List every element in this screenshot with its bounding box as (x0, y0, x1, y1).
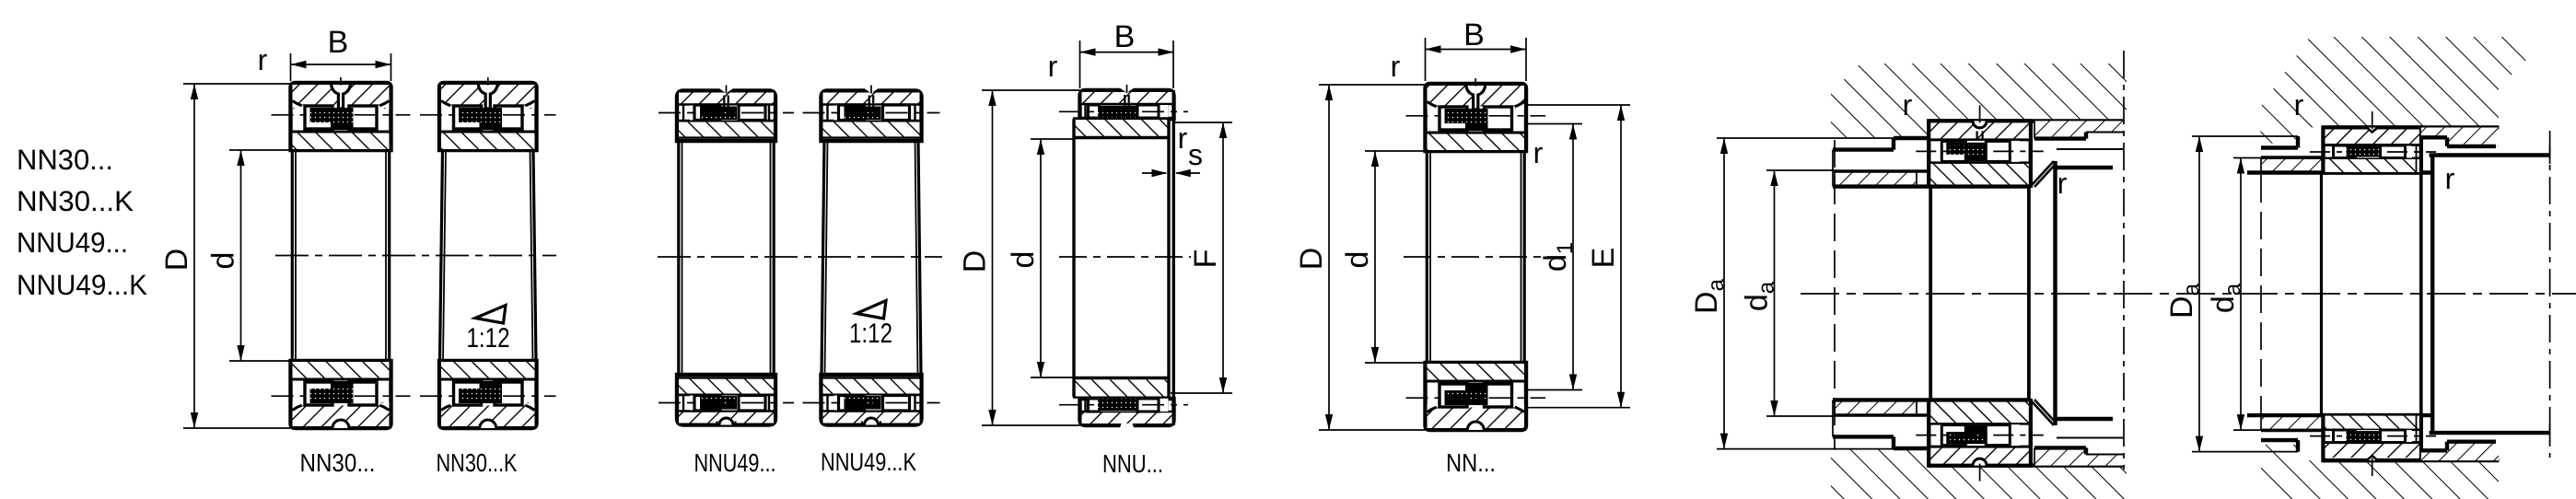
svg-text:B: B (1114, 19, 1136, 54)
svg-text:NNU49...K: NNU49...K (17, 269, 147, 301)
svg-text:r: r (258, 43, 268, 76)
svg-text:E: E (1586, 248, 1621, 269)
svg-text:NN30...K: NN30...K (17, 185, 134, 217)
svg-text:1:12: 1:12 (849, 319, 892, 349)
svg-text:r: r (2294, 88, 2304, 122)
svg-text:r: r (2057, 167, 2068, 200)
svg-text:NN30...: NN30... (300, 448, 376, 477)
svg-text:NN...: NN... (1446, 448, 1496, 477)
svg-text:d: d (206, 252, 241, 270)
svg-text:NNU49...: NNU49... (17, 226, 128, 259)
svg-text:B: B (328, 25, 349, 60)
svg-text:d: d (1006, 251, 1041, 269)
svg-text:NNU49...: NNU49... (694, 448, 776, 477)
svg-text:NN30...: NN30... (17, 144, 113, 176)
svg-text:r: r (1533, 136, 1544, 169)
svg-text:D: D (1294, 248, 1329, 271)
svg-text:D: D (159, 249, 194, 272)
svg-text:NNU...: NNU... (1102, 449, 1163, 478)
svg-text:B: B (1463, 17, 1485, 52)
svg-text:r: r (1903, 88, 1913, 122)
svg-text:r: r (1178, 122, 1188, 155)
svg-text:1:12: 1:12 (467, 323, 510, 354)
svg-text:NNU49...K: NNU49...K (821, 447, 917, 476)
svg-text:r: r (1048, 50, 1058, 83)
svg-text:D: D (958, 250, 993, 273)
svg-text:s: s (1188, 138, 1203, 171)
svg-text:r: r (1391, 50, 1401, 83)
svg-text:d: d (1340, 251, 1375, 269)
svg-text:F: F (1188, 249, 1223, 269)
svg-text:NN30...K: NN30...K (437, 448, 519, 477)
svg-text:r: r (2445, 162, 2455, 195)
